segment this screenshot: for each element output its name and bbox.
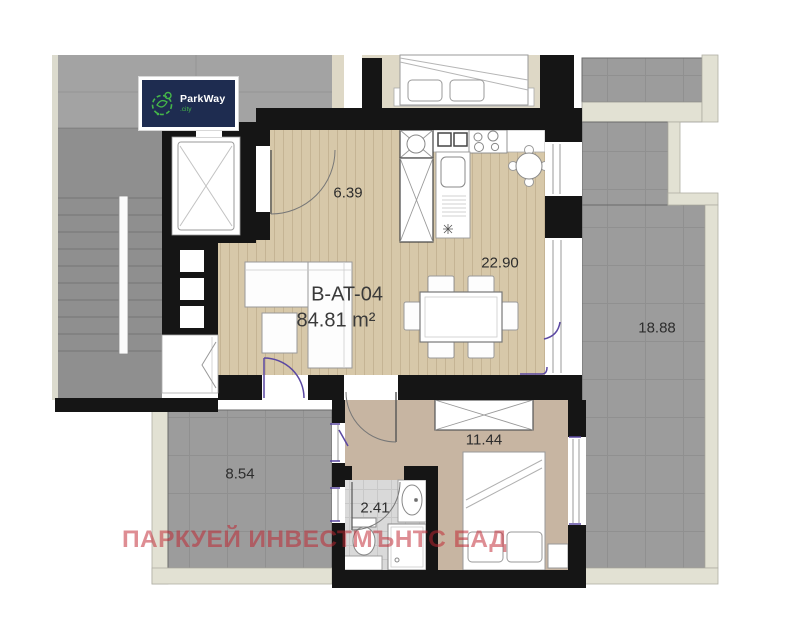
room-area-living: 22.90 bbox=[481, 255, 519, 272]
logo-suffix-text: .city bbox=[180, 107, 225, 114]
terrace-left bbox=[152, 410, 332, 584]
parkway-logo: ParkWay .city bbox=[139, 77, 238, 130]
room-area-terrace-left: 8.54 bbox=[225, 466, 254, 483]
room-area-hallway: 6.39 bbox=[333, 185, 362, 202]
parkway-logo-icon bbox=[149, 89, 175, 119]
room-area-bedroom: 11.44 bbox=[466, 432, 502, 449]
elevator bbox=[162, 122, 256, 243]
floor-plan-page: ParkWay .city B-AT-04 84.81 m² 6.39 22.9… bbox=[0, 0, 800, 640]
unit-id-label: B-AT-04 bbox=[311, 284, 383, 307]
unit-area-label: 84.81 m² bbox=[297, 310, 376, 333]
stove bbox=[469, 130, 507, 153]
logo-brand-text: ParkWay bbox=[180, 94, 225, 105]
developer-watermark: ПАРКУЕЙ ИНВЕСТМЪНТС ЕАД bbox=[122, 526, 507, 554]
adjacent-unit-room bbox=[332, 55, 540, 108]
room-area-bathroom: 2.41 bbox=[360, 500, 389, 517]
tall-cabinet bbox=[400, 130, 433, 242]
room-area-terrace-right: 18.88 bbox=[638, 320, 676, 337]
sink-console bbox=[436, 152, 470, 238]
